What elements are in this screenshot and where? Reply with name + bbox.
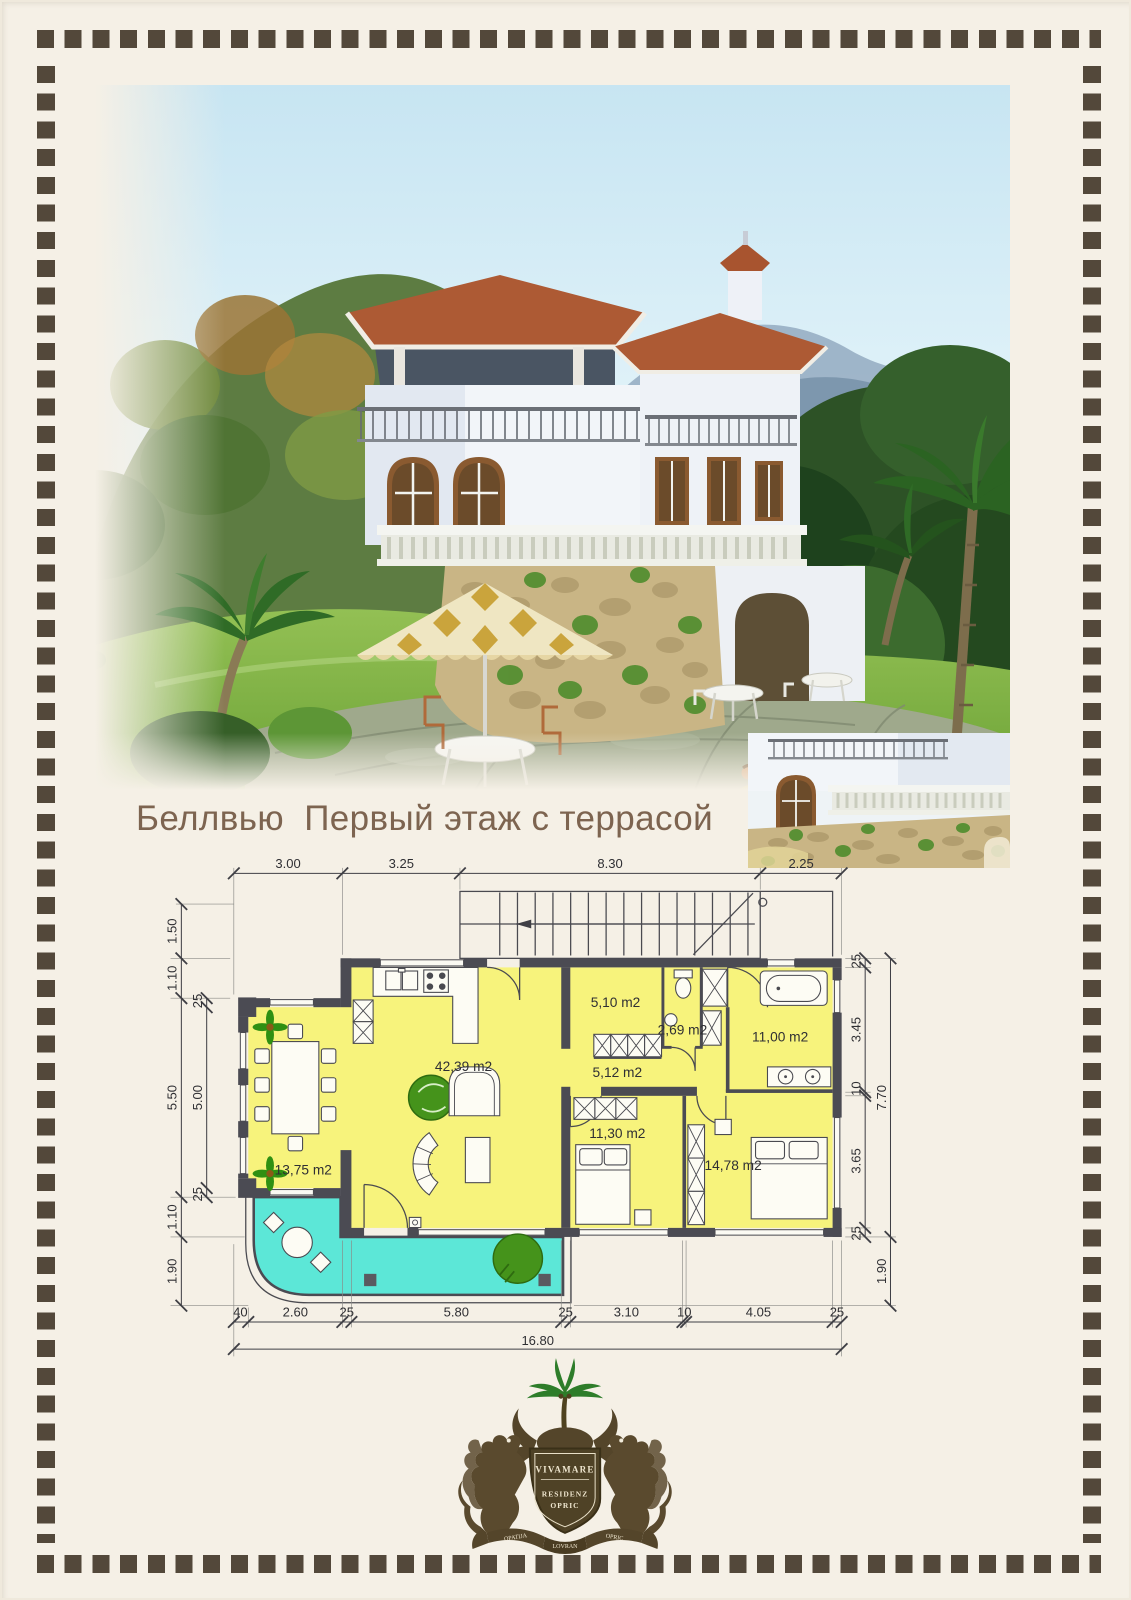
arched-window-left bbox=[387, 457, 439, 535]
right-wing bbox=[613, 313, 827, 545]
crest-opric: OPRIC bbox=[550, 1501, 579, 1510]
dim-bottom-5: 3.10 bbox=[614, 1305, 639, 1320]
dim-top-2: 8.30 bbox=[597, 856, 622, 871]
crest-lion-left bbox=[458, 1435, 526, 1535]
room-label-bedroom-2: 14,78 m2 bbox=[704, 1158, 761, 1173]
inset-balustrade bbox=[828, 785, 1010, 815]
dim-left-outer-0: 1.50 bbox=[165, 919, 180, 944]
brochure-page: Беллвью Первый этаж с террасой bbox=[0, 0, 1131, 1600]
dotted-border-right bbox=[1083, 66, 1101, 1543]
floor-plan: 42,39 m2 13,75 m2 5,10 m2 2,69 m2 11,00 … bbox=[152, 848, 909, 1369]
staircase bbox=[460, 891, 833, 958]
dim-bottom-8: 25 bbox=[830, 1305, 844, 1320]
dotted-border-top bbox=[37, 30, 1101, 48]
wing-windows bbox=[655, 457, 783, 525]
dim-left-outer-3: 1.10 bbox=[165, 1204, 180, 1229]
room-label-bedroom-1: 11,30 m2 bbox=[589, 1126, 645, 1141]
villa-rendering bbox=[95, 85, 1010, 790]
dim-left-inner-0: 25 bbox=[190, 994, 205, 1008]
terrace-plant bbox=[493, 1234, 542, 1283]
dim-left-outer-4: 1.90 bbox=[165, 1259, 180, 1284]
dim-right-inner-4: 25 bbox=[848, 1226, 863, 1240]
room-label-bathroom: 11,00 m2 bbox=[752, 1030, 808, 1045]
dim-left-outer-1: 1.10 bbox=[165, 966, 180, 991]
dim-right-outer-1: 1.90 bbox=[874, 1259, 889, 1284]
dim-bottom-4: 25 bbox=[558, 1305, 572, 1320]
dim-right-inner-1: 3.45 bbox=[848, 1017, 863, 1042]
dotted-border-left bbox=[37, 66, 55, 1543]
crest-residenz: RESIDENZ bbox=[542, 1490, 588, 1499]
dim-left-outer-2: 5.50 bbox=[165, 1085, 180, 1110]
room-label-living: 42,39 m2 bbox=[435, 1059, 492, 1074]
dim-bottom-2: 25 bbox=[339, 1305, 353, 1320]
dim-right-inner-0: 25 bbox=[848, 954, 863, 968]
crest-palm-icon bbox=[527, 1358, 603, 1431]
banner-lovran: LOVRAN bbox=[552, 1544, 578, 1550]
page-title: Беллвью Первый этаж с террасой bbox=[136, 799, 776, 839]
room-label-storage: 5,10 m2 bbox=[591, 995, 641, 1010]
main-facade bbox=[357, 385, 649, 545]
dim-bottom-1: 2.60 bbox=[283, 1305, 308, 1320]
vivamare-crest: VIVAMARE RESIDENZ OPRIC OPATIJA LOVRAN O… bbox=[444, 1336, 686, 1562]
room-label-dining: 13,75 m2 bbox=[275, 1163, 332, 1178]
dim-bottom-7: 4.05 bbox=[746, 1305, 771, 1320]
dim-right-inner-3: 3.65 bbox=[848, 1148, 863, 1173]
dim-left-inner-1: 5.00 bbox=[190, 1085, 205, 1110]
dim-top-1: 3.25 bbox=[389, 856, 414, 871]
dim-top-0: 3.00 bbox=[275, 856, 300, 871]
room-label-wc: 2,69 m2 bbox=[658, 1022, 708, 1037]
crest-lion-right bbox=[604, 1435, 672, 1535]
dim-top-3: 2.25 bbox=[788, 856, 813, 871]
dim-left-inner-2: 25 bbox=[190, 1187, 205, 1201]
inset-arched-window bbox=[776, 775, 816, 829]
room-label-hallway: 5,12 m2 bbox=[593, 1065, 643, 1080]
living-room-plant bbox=[409, 1075, 454, 1120]
dim-bottom-0: 40 bbox=[233, 1305, 247, 1320]
dim-bottom-3: 5.80 bbox=[444, 1305, 469, 1320]
dim-right-inner-2: 10 bbox=[848, 1081, 863, 1095]
crest-name: VIVAMARE bbox=[535, 1465, 594, 1475]
crest-shield: VIVAMARE RESIDENZ OPRIC bbox=[530, 1448, 600, 1532]
edge-fade-left bbox=[95, 85, 225, 790]
dim-bottom-6: 10 bbox=[677, 1305, 691, 1320]
arched-window-right bbox=[453, 457, 505, 535]
terrace-balustrade bbox=[377, 525, 807, 566]
dim-right-outer-0: 7.70 bbox=[874, 1085, 889, 1110]
stone-arch-opening bbox=[735, 593, 809, 701]
